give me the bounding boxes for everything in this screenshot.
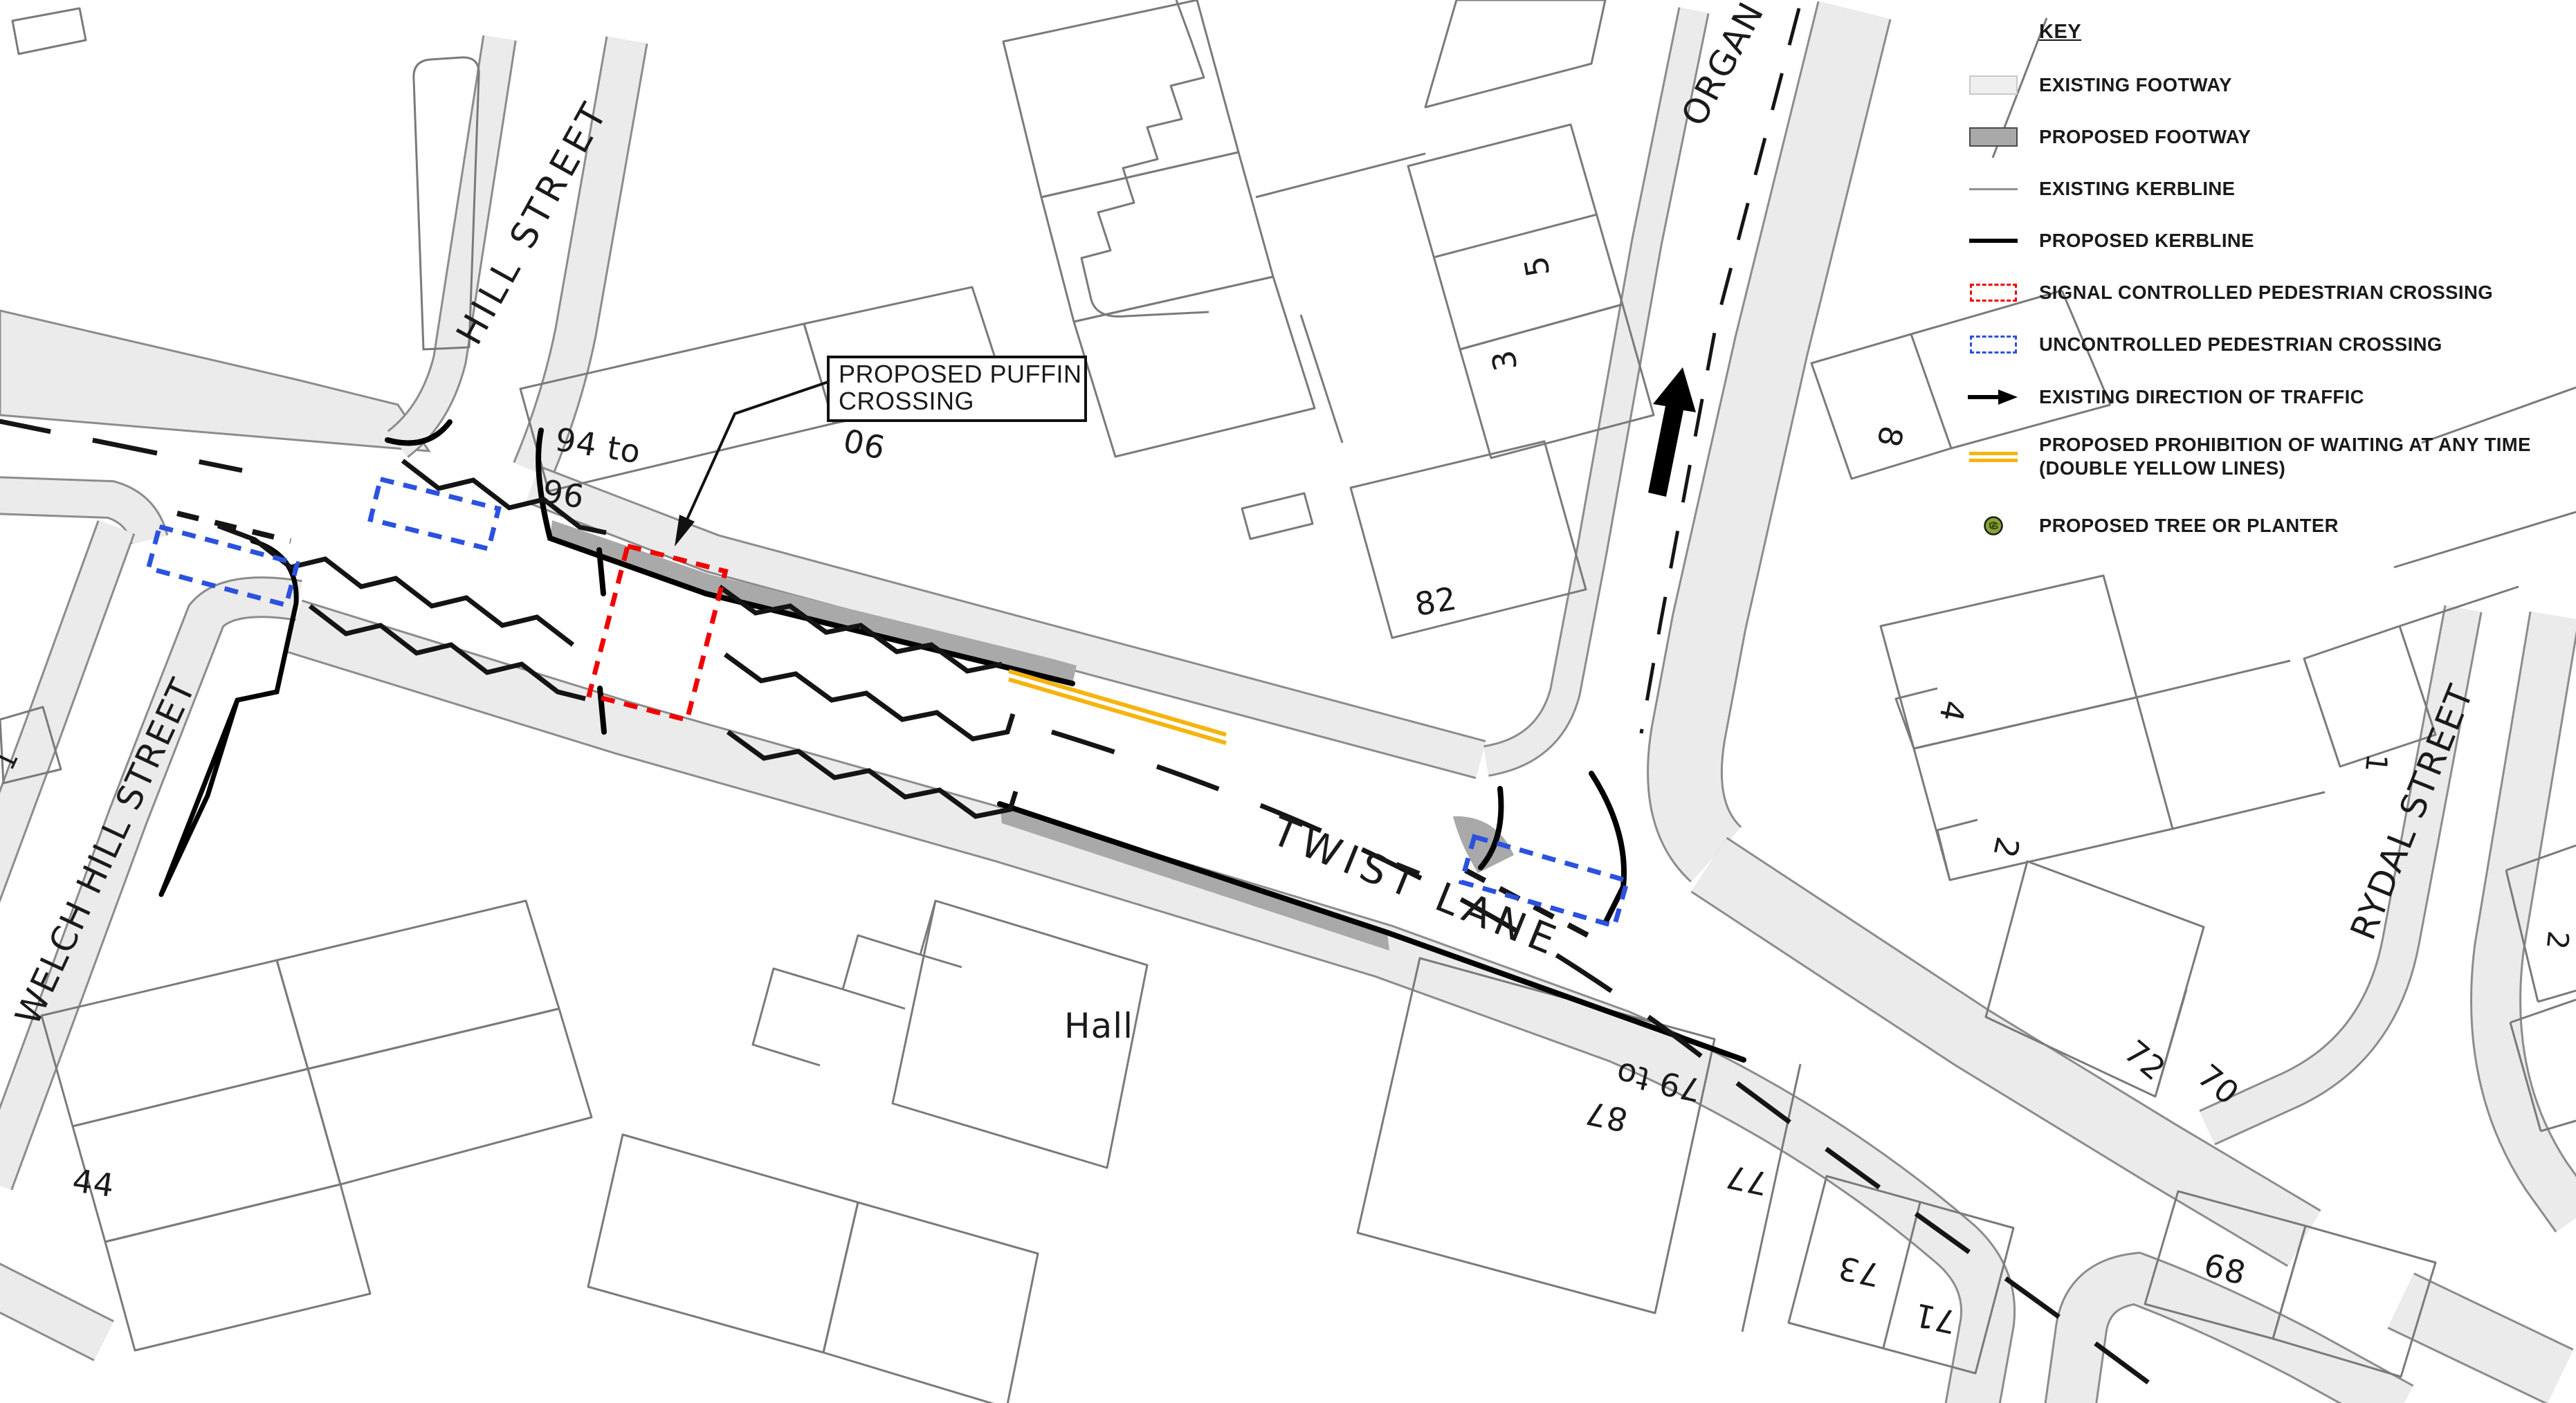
label-71: 71 — [1910, 1296, 1959, 1341]
label-94to: 94 to — [553, 421, 643, 471]
label-44: 44 — [70, 1162, 116, 1204]
legend-label: UNCONTROLLED PEDESTRIAN CROSSING — [2039, 333, 2442, 356]
legend-row-existing-footway: EXISTING FOOTWAY — [1968, 74, 2232, 96]
legend-label: EXISTING KERBLINE — [2039, 178, 2235, 200]
direction-arrow-icon — [1968, 388, 2018, 406]
legend-row-waiting-prohibition: PROPOSED PROHIBITION OF WAITING AT ANY T… — [1968, 433, 2531, 481]
signal-crossing-swatch-icon — [1968, 284, 2018, 302]
uncontrolled-crossing-swatch-icon — [1968, 336, 2018, 354]
callout-leader-line — [679, 382, 828, 536]
uncontrolled-crossing-hill — [370, 479, 498, 549]
label-hall: Hall — [1064, 1006, 1133, 1046]
legend-label-group: PROPOSED PROHIBITION OF WAITING AT ANY T… — [2039, 433, 2531, 481]
label-96: 96 — [540, 473, 587, 516]
existing-footway-swatch-icon — [1968, 75, 2018, 95]
double-yellow-swatch-icon — [1968, 452, 2018, 462]
label-77: 77 — [1722, 1157, 1771, 1202]
label-2-rydal: 2 — [2540, 929, 2576, 952]
label-3: 3 — [1484, 347, 1524, 374]
legend: KEY EXISTING FOOTWAY PROPOSED FOOTWAY EX… — [1968, 10, 2570, 556]
legend-label: SIGNAL CONTROLLED PEDESTRIAN CROSSING — [2039, 282, 2493, 304]
legend-label: PROPOSED TREE OR PLANTER — [2039, 515, 2339, 537]
label-82: 82 — [1412, 579, 1460, 623]
legend-row-direction-of-traffic: EXISTING DIRECTION OF TRAFFIC — [1968, 386, 2364, 408]
legend-label: EXISTING FOOTWAY — [2039, 74, 2232, 96]
callout-line1: PROPOSED PUFFIN — [839, 360, 1082, 388]
legend-title: KEY — [2039, 21, 2081, 44]
legend-row-signal-crossing: SIGNAL CONTROLLED PEDESTRIAN CROSSING — [1968, 282, 2493, 304]
legend-label: EXISTING DIRECTION OF TRAFFIC — [2039, 386, 2364, 408]
label-87: 87 — [1582, 1094, 1630, 1139]
legend-row-proposed-footway: PROPOSED FOOTWAY — [1968, 126, 2251, 148]
label-73: 73 — [1834, 1249, 1883, 1294]
legend-label: PROPOSED KERBLINE — [2039, 230, 2254, 252]
legend-row-uncontrolled-crossing: UNCONTROLLED PEDESTRIAN CROSSING — [1968, 333, 2442, 356]
proposed-kerbline-swatch-icon — [1968, 239, 2018, 243]
legend-row-tree-planter: PROPOSED TREE OR PLANTER — [1968, 515, 2339, 537]
proposed-footway-swatch-icon — [1968, 127, 2018, 147]
legend-row-proposed-kerbline: PROPOSED KERBLINE — [1968, 230, 2254, 252]
legend-label-line2: (DOUBLE YELLOW LINES) — [2039, 457, 2531, 480]
label-8: 8 — [1870, 423, 1910, 451]
callout-line2: CROSSING — [839, 387, 974, 415]
label-90: 90 — [839, 421, 888, 466]
label-1-rydal: 1 — [2359, 752, 2395, 775]
label-72: 72 — [2117, 1033, 2173, 1088]
tree-planter-icon — [1968, 515, 2018, 537]
label-5: 5 — [1517, 253, 1557, 279]
legend-label: PROPOSED PROHIBITION OF WAITING AT ANY T… — [2039, 433, 2531, 457]
existing-kerbline-swatch-icon — [1968, 188, 2018, 190]
legend-row-existing-kerbline: EXISTING KERBLINE — [1968, 178, 2235, 200]
traffic-scheme-plan: PROPOSED PUFFIN CROSSING HILL STREET WEL… — [0, 0, 2576, 1403]
label-4: 4 — [1932, 697, 1973, 726]
legend-label: PROPOSED FOOTWAY — [2039, 126, 2251, 148]
label-2-organ: 2 — [1986, 834, 2027, 862]
